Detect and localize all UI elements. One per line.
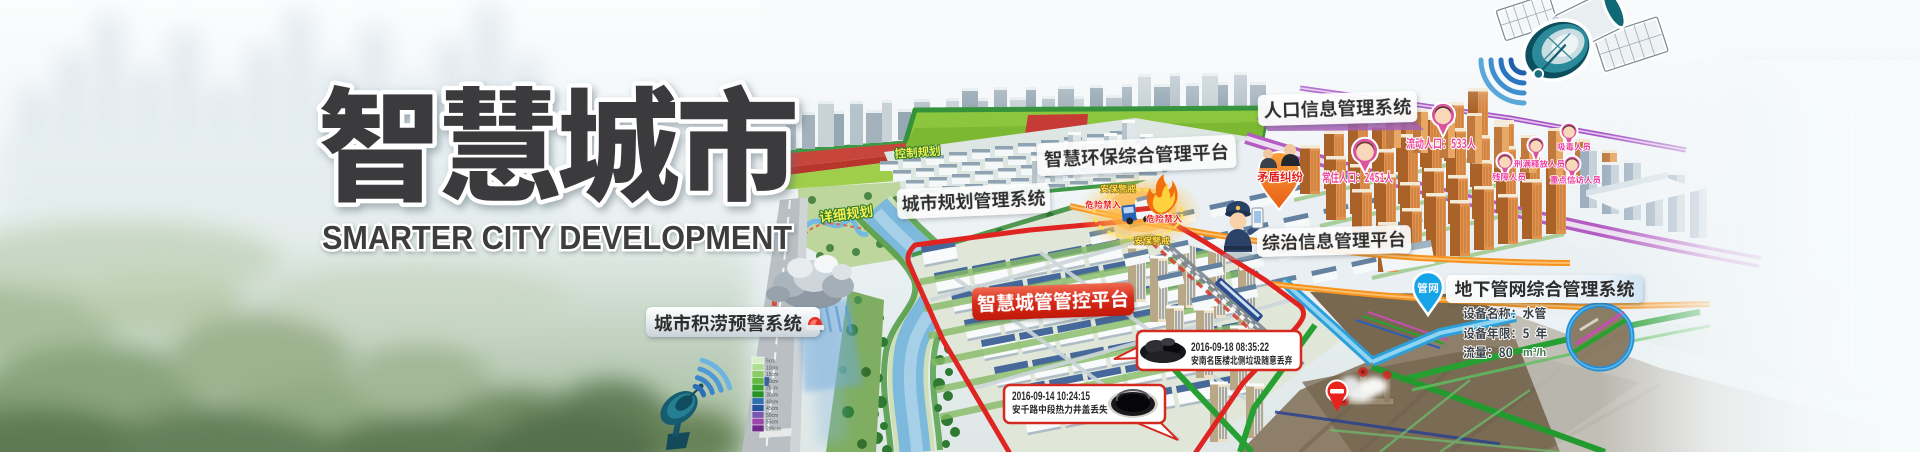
svg-text:10cm: 10cm <box>766 365 778 371</box>
svg-text:55cm: 55cm <box>766 420 778 426</box>
svg-text:205cm: 205cm <box>766 427 781 433</box>
svg-text:2016-09-14 10:24:15: 2016-09-14 10:24:15 <box>1012 389 1090 403</box>
svg-text:50cm: 50cm <box>766 413 778 419</box>
svg-text:40cm: 40cm <box>766 399 778 405</box>
svg-text:SMARTER CITY DEVELOPMENT: SMARTER CITY DEVELOPMENT <box>322 219 792 256</box>
svg-text:45cm: 45cm <box>766 406 778 412</box>
svg-text:20cm: 20cm <box>766 379 778 385</box>
svg-text:5cm: 5cm <box>766 359 775 365</box>
svg-text:2016-09-18 08:35:22: 2016-09-18 08:35:22 <box>1191 340 1269 354</box>
svg-text:15cm: 15cm <box>766 372 778 378</box>
svg-text:25cm: 25cm <box>766 386 778 392</box>
svg-text:m³/h: m³/h <box>1523 347 1547 359</box>
svg-text:30cm: 30cm <box>766 393 778 399</box>
